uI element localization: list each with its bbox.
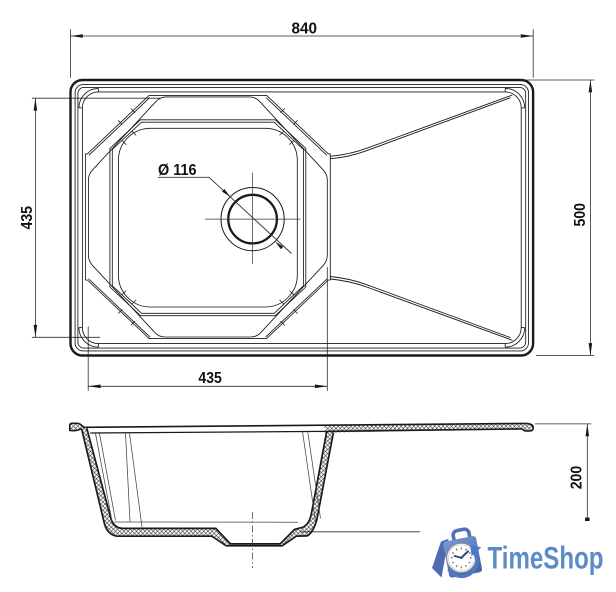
svg-text:840: 840 bbox=[292, 20, 318, 37]
svg-text:435: 435 bbox=[198, 370, 221, 387]
svg-text:200: 200 bbox=[569, 466, 586, 490]
svg-text:Ø 116: Ø 116 bbox=[158, 162, 197, 179]
svg-text:435: 435 bbox=[19, 206, 36, 230]
svg-text:TimeShop: TimeShop bbox=[488, 540, 604, 576]
svg-text:500: 500 bbox=[572, 203, 589, 227]
